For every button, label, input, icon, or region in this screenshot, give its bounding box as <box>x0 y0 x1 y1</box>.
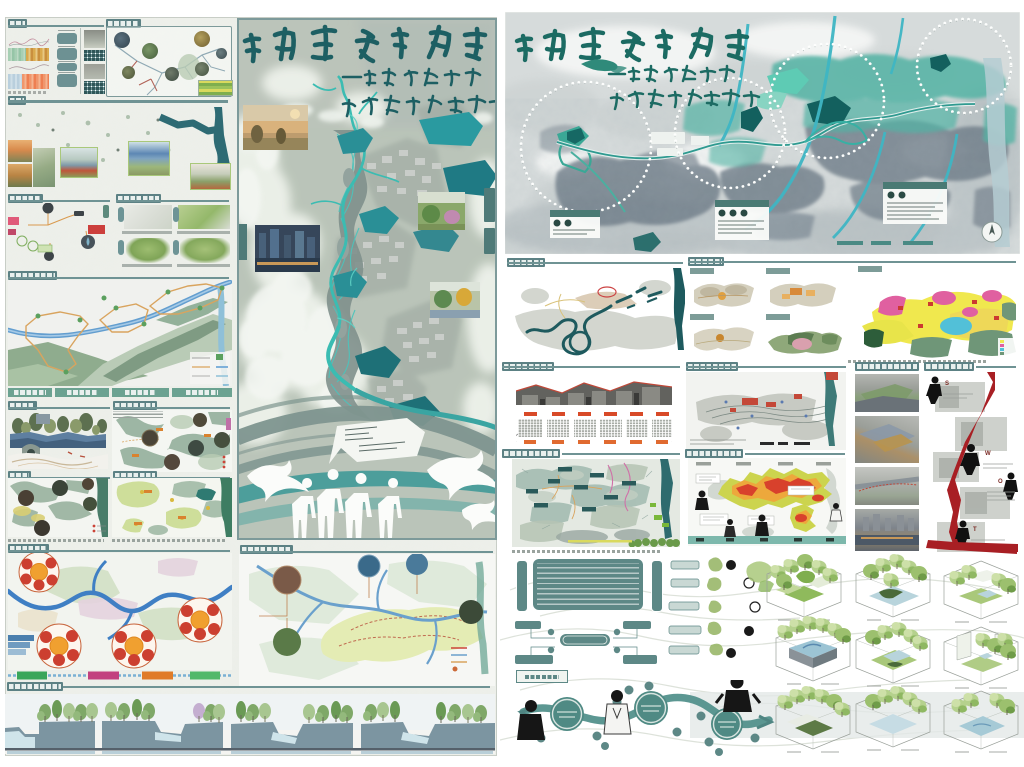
svg-text:T: T <box>973 527 977 533</box>
svg-text:W: W <box>985 451 991 457</box>
svg-text:S: S <box>945 381 949 387</box>
svg-text:O: O <box>998 479 1003 485</box>
